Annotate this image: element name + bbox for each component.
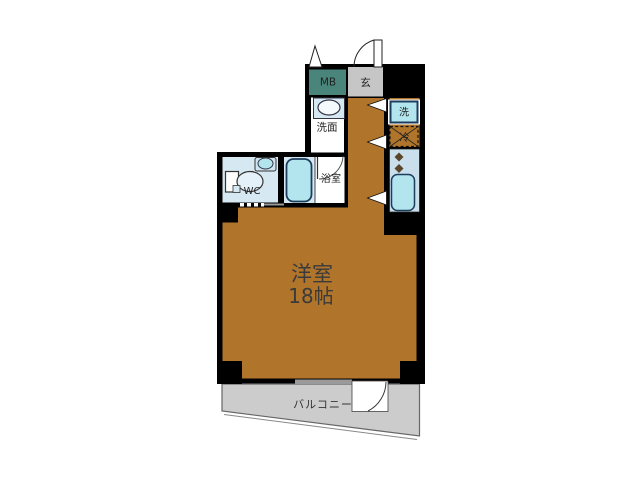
label-room-name: 洋室 bbox=[291, 262, 333, 286]
pillar-bottom-left bbox=[217, 361, 242, 384]
bathtub-icon bbox=[287, 159, 312, 202]
label-genkan: 玄 bbox=[360, 76, 371, 89]
label-senmen: 洗面 bbox=[317, 122, 338, 134]
mb-door-triangle-icon bbox=[309, 46, 322, 67]
senmen-sink-icon bbox=[318, 100, 340, 115]
wc-corner-sink-basin-icon bbox=[258, 158, 273, 169]
toilet-flush-icon bbox=[233, 186, 240, 193]
label-bathroom: 浴室 bbox=[321, 172, 341, 185]
floorplan-page: MB 玄 洗面 洗 冷 WC 浴室 洋室 18帖 バルコニー bbox=[0, 0, 640, 480]
pillar-left-mid bbox=[217, 203, 238, 223]
label-balcony: バルコニー bbox=[293, 398, 353, 411]
pillar-bottom-right bbox=[400, 361, 420, 384]
label-washer: 洗 bbox=[399, 107, 409, 119]
entrance-door-leaf-icon bbox=[374, 40, 382, 67]
label-mb: MB bbox=[320, 77, 336, 89]
label-room-size: 18帖 bbox=[288, 284, 333, 308]
floorplan-canvas: MB 玄 洗面 洗 冷 WC 浴室 洋室 18帖 バルコニー bbox=[0, 0, 640, 480]
window-bottom-wall bbox=[295, 380, 352, 385]
kitchen-sink-icon bbox=[392, 175, 415, 211]
entrance-door-arc-icon bbox=[354, 40, 374, 67]
label-wc: WC bbox=[244, 186, 261, 197]
label-fridge: 冷 bbox=[400, 131, 410, 144]
